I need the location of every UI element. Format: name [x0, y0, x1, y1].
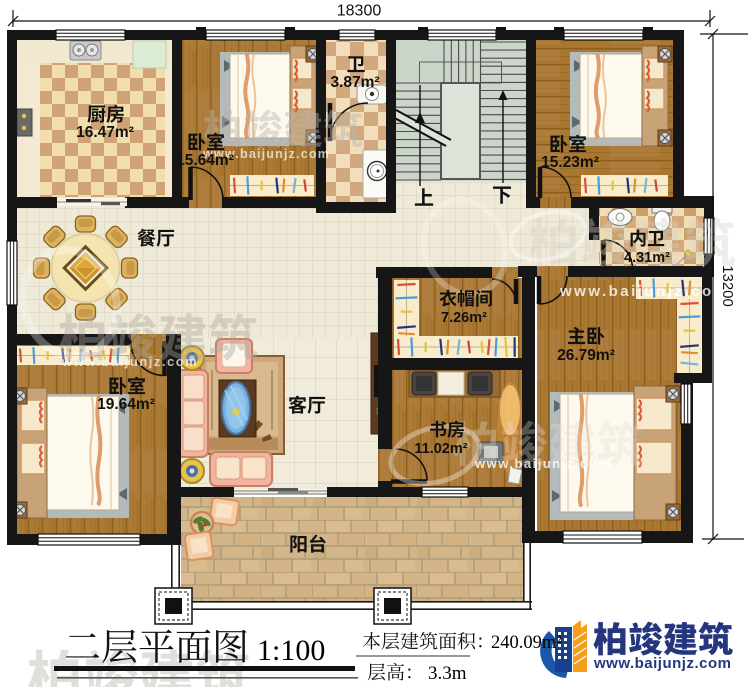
svg-text:1:100: 1:100 — [257, 634, 325, 667]
svg-text:19.64m²: 19.64m² — [97, 396, 155, 413]
svg-text:16.47m²: 16.47m² — [76, 124, 134, 141]
svg-text:3.87m²: 3.87m² — [330, 74, 379, 91]
svg-text:11.02m²: 11.02m² — [414, 441, 467, 457]
svg-text:www.baijunjz.com: www.baijunjz.com — [474, 456, 611, 471]
svg-text:18300: 18300 — [337, 3, 382, 20]
svg-text:3.3m: 3.3m — [428, 663, 467, 684]
svg-text:4.31m²: 4.31m² — [624, 250, 670, 266]
svg-text:13200: 13200 — [719, 265, 736, 307]
svg-text:www.baijunjz.com: www.baijunjz.com — [61, 354, 198, 369]
svg-text:7.26m²: 7.26m² — [441, 310, 487, 326]
svg-text:15.64m²: 15.64m² — [176, 152, 234, 169]
svg-text:26.79m²: 26.79m² — [557, 347, 615, 364]
svg-text:15.23m²: 15.23m² — [541, 154, 599, 171]
svg-text:www.baijunjz.com: www.baijunjz.com — [593, 655, 731, 672]
svg-text:240.09m²: 240.09m² — [491, 633, 562, 653]
svg-text:www.baijunjz.com: www.baijunjz.com — [559, 283, 729, 300]
